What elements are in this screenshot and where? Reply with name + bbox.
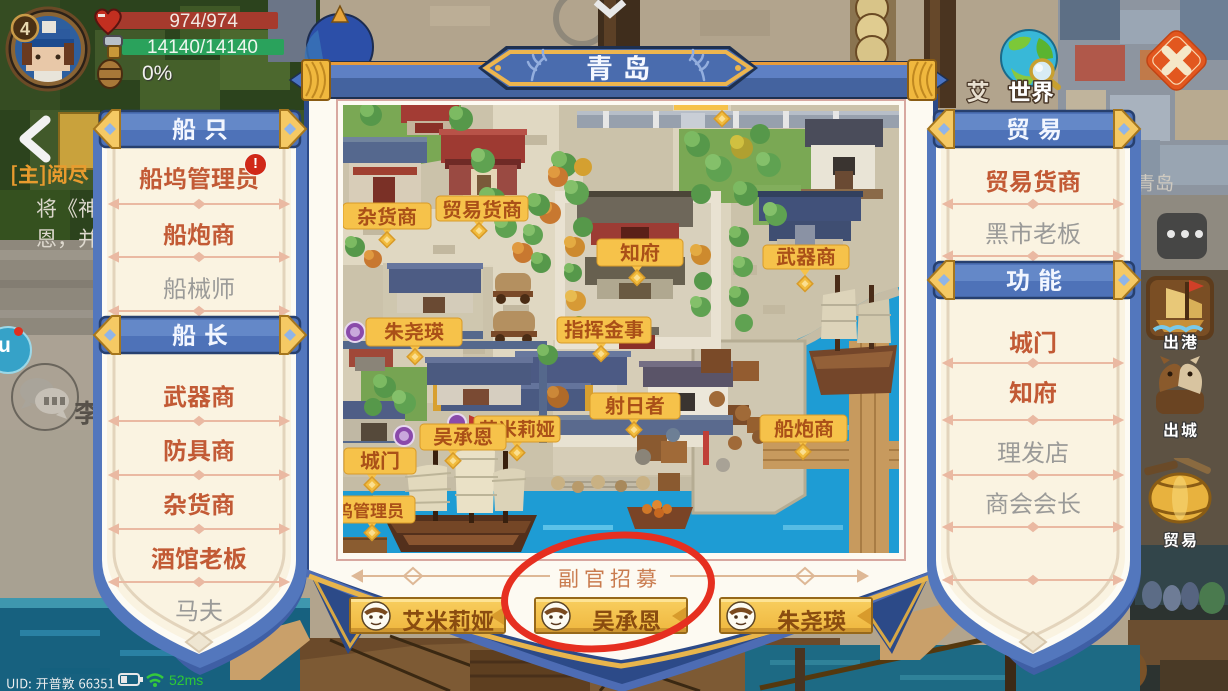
svg-text:4: 4 <box>20 19 30 39</box>
